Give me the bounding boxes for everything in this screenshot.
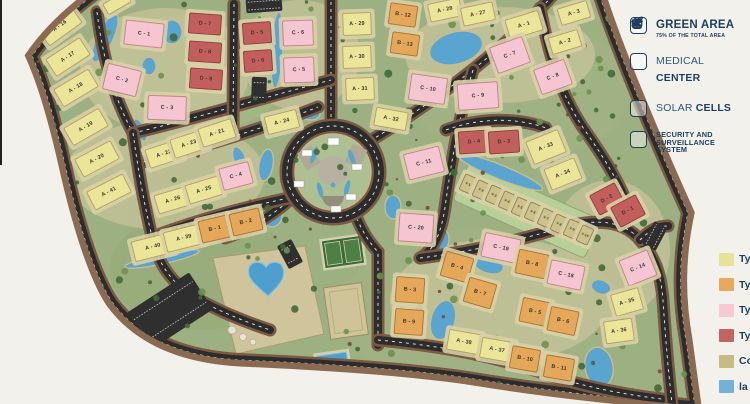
building-block: B - 3 — [391, 272, 429, 307]
unit-type-legend: TyTyTyTyCola — [719, 252, 750, 404]
legend-item-label: GREEN AREA75% OF THE TOTAL AREA — [656, 16, 734, 39]
unit-type-label: la — [739, 381, 748, 393]
legend-item: MEDICAL CENTER — [630, 52, 748, 86]
unit-type-swatch — [719, 380, 734, 393]
building-block: C - 1 — [119, 16, 168, 53]
building-block: D - 9 — [185, 64, 227, 95]
building-block: D - 8 — [184, 37, 226, 68]
solar-panel-icon — [630, 100, 647, 117]
building-block: C - 3 — [143, 91, 190, 125]
building-block-label: A - 29 — [349, 21, 365, 28]
legend-item: SOLAR CELLS — [630, 99, 748, 117]
building-block: D - 6 — [239, 45, 277, 76]
unit-type-row: la — [719, 380, 750, 394]
building-block-label: A - 30 — [349, 54, 365, 61]
building-block: B - 9 — [390, 304, 428, 339]
unit-type-label: Ty — [739, 279, 750, 291]
building-block: C - 5 — [279, 53, 318, 87]
building-block: C - 10 — [404, 69, 452, 109]
legend-item-label: SOLAR CELLS — [656, 99, 731, 116]
unit-type-row: Ty — [719, 329, 750, 343]
unit-type-swatch — [719, 253, 734, 266]
building-block-label: C - 6 — [292, 30, 305, 36]
building-block-label: B - 3 — [403, 287, 416, 294]
building-block-label: C - 9 — [471, 93, 484, 100]
legend-item-label: MEDICAL CENTER — [656, 52, 748, 86]
building-block: D - 7 — [184, 9, 226, 40]
unit-type-swatch — [719, 329, 734, 342]
building-block-label: D - 8 — [198, 49, 211, 56]
unit-type-label: Ty — [739, 304, 750, 316]
building-block-label: D - 5 — [250, 30, 263, 37]
building-block-label: A - 31 — [352, 86, 368, 93]
parking-lot — [251, 77, 267, 104]
unit-type-row: Co — [719, 354, 750, 368]
unit-type-label: Co — [739, 355, 750, 367]
cctv-camera-icon — [630, 131, 647, 148]
building-block-label: D - 9 — [199, 76, 212, 83]
unit-type-swatch — [719, 304, 734, 317]
building-block: C - 9 — [453, 77, 503, 114]
unit-type-swatch — [719, 278, 734, 291]
unit-type-swatch — [719, 355, 734, 368]
building-block: B - 13 — [386, 27, 425, 61]
unit-type-row: Ty — [719, 252, 750, 266]
amenities-legend: GREEN AREA75% OF THE TOTAL AREAMEDICAL C… — [630, 16, 748, 167]
legend-item: GREEN AREA75% OF THE TOTAL AREA — [630, 16, 748, 39]
unit-type-row: Ty — [719, 278, 750, 292]
building-block-label: B - 9 — [402, 319, 415, 326]
building-block-label: D - 7 — [198, 21, 211, 28]
masterplan-screenshot: A - 16A - 17A - 18A - 19A - 20A - 41A - … — [0, 0, 750, 404]
building-block-label: C - 20 — [408, 224, 424, 231]
building-block: D - 5 — [238, 17, 276, 48]
medical-bag-icon — [630, 53, 647, 70]
building-block: D - 3 — [484, 126, 524, 159]
building-block-label: D - 3 — [497, 139, 510, 146]
building-block: B - 10 — [505, 341, 546, 377]
unit-type-label: Ty — [739, 330, 750, 342]
building-block: B - 11 — [539, 350, 580, 386]
unit-type-label: Ty — [739, 253, 750, 265]
unit-type-row: Ty — [719, 303, 750, 317]
building-block: A - 31 — [341, 73, 378, 104]
building-block: C - 6 — [278, 16, 317, 50]
legend-item: SECURITY ANDSURVEILLANCE SYSTEM — [630, 130, 748, 154]
building-block: A - 36 — [599, 314, 639, 349]
building-block-label: C - 5 — [293, 67, 306, 73]
screen-edge-artifact — [0, 0, 2, 165]
building-block-label: D - 6 — [251, 58, 264, 65]
building-block: A - 29 — [338, 8, 375, 39]
building-block: A - 30 — [338, 41, 375, 72]
building-block-label: D - 4 — [467, 139, 480, 146]
building-block: C - 20 — [394, 209, 438, 248]
legend-item-label: SECURITY ANDSURVEILLANCE SYSTEM — [656, 130, 748, 154]
building-block: B - 12 — [384, 0, 423, 32]
building-block-label: C - 3 — [161, 105, 174, 111]
